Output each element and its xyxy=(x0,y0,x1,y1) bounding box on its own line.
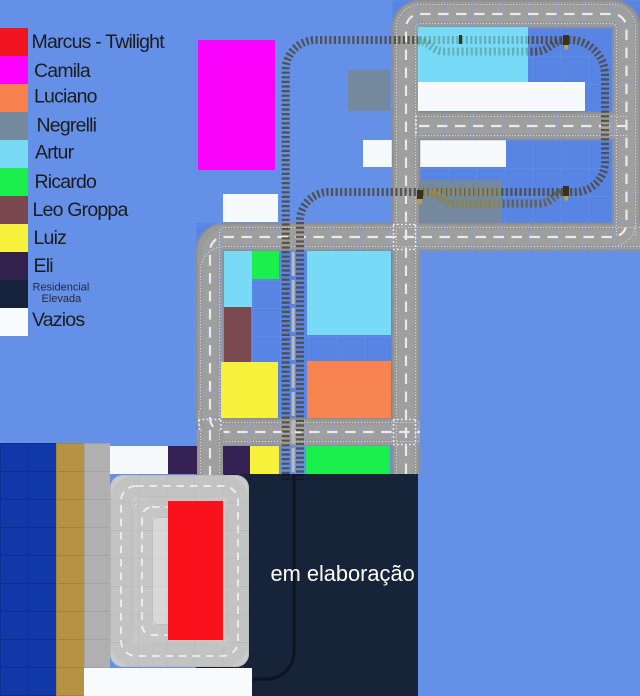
svg-text:Camila: Camila xyxy=(34,60,91,82)
svg-text:Leo Groppa: Leo Groppa xyxy=(33,199,129,221)
svg-text:Negrelli: Negrelli xyxy=(37,115,97,137)
svg-text:Vazios: Vazios xyxy=(32,309,85,331)
svg-text:Eli: Eli xyxy=(34,255,54,277)
svg-text:Luiz: Luiz xyxy=(34,227,67,249)
svg-text:em elaboração: em elaboração xyxy=(271,561,415,586)
svg-text:Elevada: Elevada xyxy=(42,293,83,305)
svg-text:Residencial: Residencial xyxy=(33,282,90,294)
svg-text:Artur: Artur xyxy=(35,142,75,164)
svg-text:Ricardo: Ricardo xyxy=(35,171,98,193)
svg-text:Luciano: Luciano xyxy=(34,86,98,108)
svg-text:Marcus - Twilight: Marcus - Twilight xyxy=(32,31,166,53)
